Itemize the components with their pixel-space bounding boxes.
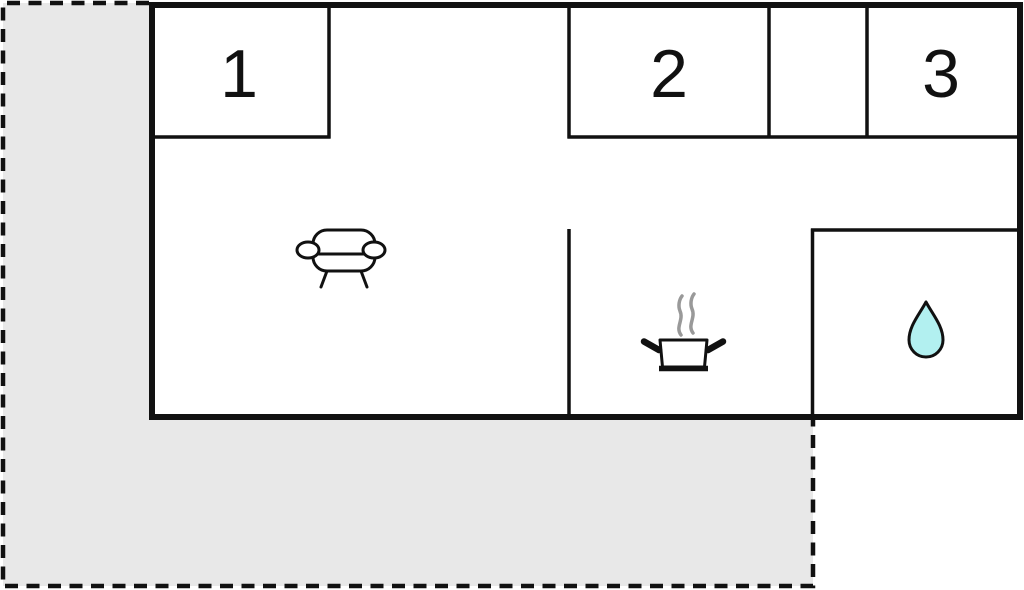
floor-plan-canvas: 1 2 3 <box>0 0 1024 590</box>
building-outline <box>152 5 1020 417</box>
room-3-label: 3 <box>922 36 960 112</box>
room-2-label: 2 <box>650 36 688 112</box>
floor-plan: 1 2 3 <box>0 0 1024 590</box>
room-1-label: 1 <box>220 36 258 112</box>
